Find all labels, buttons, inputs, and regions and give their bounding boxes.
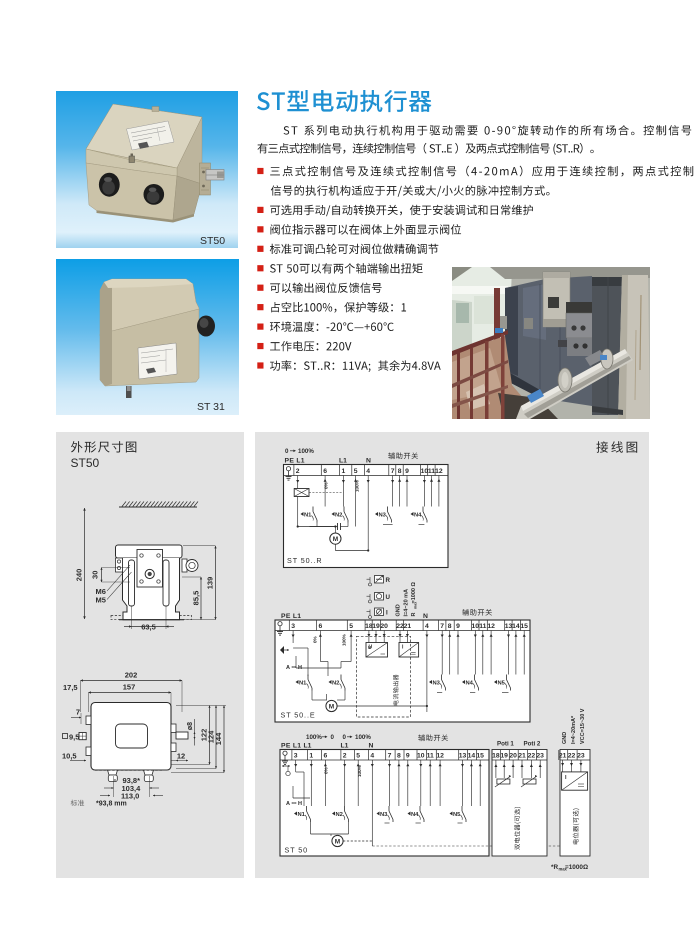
svg-text:7: 7 bbox=[440, 623, 444, 630]
svg-text:9: 9 bbox=[406, 753, 410, 760]
svg-text:ST 50..R: ST 50..R bbox=[287, 556, 322, 565]
svg-text:0%: 0% bbox=[324, 767, 329, 774]
svg-text:21: 21 bbox=[404, 623, 412, 630]
svg-text:L1: L1 bbox=[304, 743, 312, 750]
svg-text:10: 10 bbox=[417, 753, 425, 760]
svg-text:100%: 100% bbox=[298, 448, 314, 455]
svg-text:0%: 0% bbox=[324, 482, 329, 489]
svg-text:0%: 0% bbox=[313, 636, 318, 643]
svg-text:PE L1: PE L1 bbox=[281, 613, 301, 620]
svg-text:21: 21 bbox=[518, 753, 526, 760]
svg-text:N4: N4 bbox=[466, 680, 474, 686]
svg-text:6: 6 bbox=[323, 468, 327, 475]
svg-text:L1: L1 bbox=[341, 743, 349, 750]
svg-text:I=4~20 mA: I=4~20 mA bbox=[404, 589, 410, 617]
svg-text:ST50: ST50 bbox=[71, 456, 100, 470]
svg-text:14: 14 bbox=[512, 623, 520, 630]
svg-text:15: 15 bbox=[520, 623, 528, 630]
svg-text:5: 5 bbox=[356, 753, 360, 760]
svg-text:157: 157 bbox=[123, 683, 136, 692]
svg-text:0: 0 bbox=[331, 734, 335, 741]
svg-text:N1: N1 bbox=[304, 512, 312, 518]
svg-text:N4: N4 bbox=[414, 512, 422, 518]
svg-text:N2: N2 bbox=[335, 512, 342, 518]
svg-text:PE L1: PE L1 bbox=[285, 458, 305, 465]
svg-text:7: 7 bbox=[76, 708, 80, 717]
svg-text:U: U bbox=[368, 645, 371, 650]
svg-text:21: 21 bbox=[559, 753, 567, 760]
svg-text:=1000Ω: =1000Ω bbox=[565, 864, 588, 871]
svg-text:R: R bbox=[411, 613, 417, 617]
svg-text:8: 8 bbox=[398, 468, 402, 475]
svg-text:11: 11 bbox=[427, 753, 434, 760]
svg-text:5: 5 bbox=[354, 468, 358, 475]
svg-text:N3: N3 bbox=[433, 680, 441, 686]
svg-text:14: 14 bbox=[468, 753, 476, 760]
svg-text:10: 10 bbox=[472, 623, 480, 630]
svg-text:N: N bbox=[369, 743, 374, 750]
svg-text:15: 15 bbox=[476, 753, 484, 760]
svg-text:7: 7 bbox=[391, 468, 395, 475]
svg-text:R: R bbox=[386, 577, 391, 584]
svg-text:13: 13 bbox=[459, 753, 467, 760]
svg-text:ST 50..E: ST 50..E bbox=[281, 711, 316, 720]
svg-text:12: 12 bbox=[177, 752, 185, 761]
svg-text:4: 4 bbox=[370, 753, 374, 760]
svg-text:N5: N5 bbox=[498, 680, 506, 686]
svg-text:2: 2 bbox=[343, 753, 347, 760]
svg-text:12: 12 bbox=[436, 753, 444, 760]
svg-text:10,5: 10,5 bbox=[62, 752, 77, 761]
svg-text:113,0: 113,0 bbox=[121, 792, 139, 801]
svg-text:N3: N3 bbox=[379, 512, 387, 518]
svg-text:100%: 100% bbox=[342, 634, 347, 646]
svg-text:N2: N2 bbox=[332, 680, 339, 686]
svg-text:19: 19 bbox=[372, 623, 380, 630]
svg-text:4: 4 bbox=[425, 623, 429, 630]
svg-text:12: 12 bbox=[435, 468, 443, 475]
svg-text:12: 12 bbox=[487, 623, 495, 630]
svg-text:202: 202 bbox=[125, 671, 138, 680]
svg-text:N4: N4 bbox=[411, 812, 419, 818]
svg-text:ST 50: ST 50 bbox=[285, 846, 309, 855]
svg-text:85,5: 85,5 bbox=[192, 591, 201, 606]
svg-text:18: 18 bbox=[492, 753, 500, 760]
svg-text:3: 3 bbox=[291, 623, 295, 630]
svg-text:N: N bbox=[423, 613, 428, 620]
svg-text:N1: N1 bbox=[299, 680, 307, 686]
svg-text:9,5: 9,5 bbox=[69, 733, 79, 742]
svg-text:20: 20 bbox=[509, 753, 517, 760]
svg-text:3: 3 bbox=[294, 753, 298, 760]
svg-text:4: 4 bbox=[366, 468, 370, 475]
svg-text:11: 11 bbox=[479, 623, 486, 630]
svg-text:6: 6 bbox=[319, 623, 323, 630]
svg-text:I: I bbox=[386, 610, 388, 617]
svg-text:*93,8 mm: *93,8 mm bbox=[96, 801, 127, 808]
svg-text:ST50: ST50 bbox=[200, 235, 225, 247]
svg-text:100%: 100% bbox=[354, 480, 359, 492]
svg-text:N2: N2 bbox=[336, 812, 343, 818]
svg-text:9: 9 bbox=[405, 468, 409, 475]
svg-text:I=4~20mA*: I=4~20mA* bbox=[571, 715, 577, 744]
svg-text:M: M bbox=[329, 703, 334, 710]
svg-text:Poti 1: Poti 1 bbox=[497, 741, 514, 748]
svg-text:23: 23 bbox=[536, 753, 544, 760]
svg-text:L1: L1 bbox=[339, 458, 347, 465]
svg-text:M5: M5 bbox=[96, 596, 106, 605]
svg-text:Poti 2: Poti 2 bbox=[524, 741, 541, 748]
svg-text:5: 5 bbox=[349, 623, 353, 630]
svg-text:8: 8 bbox=[448, 623, 452, 630]
svg-text:9: 9 bbox=[456, 623, 460, 630]
svg-text:M: M bbox=[333, 536, 338, 543]
svg-text:20: 20 bbox=[380, 623, 388, 630]
svg-text:N3: N3 bbox=[380, 812, 388, 818]
svg-text:22: 22 bbox=[568, 753, 576, 760]
svg-text:100%: 100% bbox=[355, 734, 371, 741]
svg-text:N: N bbox=[366, 458, 371, 465]
svg-text:A: A bbox=[286, 665, 290, 671]
svg-text:PE L1: PE L1 bbox=[281, 743, 301, 750]
svg-text:A: A bbox=[286, 801, 290, 807]
svg-text:M: M bbox=[335, 838, 340, 845]
svg-text:N5: N5 bbox=[453, 812, 461, 818]
svg-text:H: H bbox=[298, 665, 302, 671]
svg-text:1: 1 bbox=[342, 468, 346, 475]
svg-text:VCC=15~30 V: VCC=15~30 V bbox=[580, 708, 586, 744]
svg-text:*R: *R bbox=[551, 864, 558, 871]
svg-text:0: 0 bbox=[285, 448, 289, 455]
svg-text:0: 0 bbox=[343, 734, 347, 741]
svg-text:17,5: 17,5 bbox=[63, 683, 78, 692]
svg-text:30: 30 bbox=[91, 571, 100, 579]
svg-text:100%: 100% bbox=[357, 765, 362, 777]
svg-text:19: 19 bbox=[500, 753, 508, 760]
svg-text:63,5: 63,5 bbox=[141, 623, 156, 632]
svg-text:100%: 100% bbox=[306, 734, 322, 741]
svg-text:7: 7 bbox=[388, 753, 392, 760]
svg-text:144: 144 bbox=[214, 732, 223, 745]
svg-text:N1: N1 bbox=[298, 812, 306, 818]
svg-text:ø8: ø8 bbox=[187, 722, 194, 730]
svg-text:1: 1 bbox=[309, 753, 313, 760]
svg-text:GND: GND bbox=[396, 604, 402, 616]
svg-text:139: 139 bbox=[206, 577, 215, 590]
svg-text:22: 22 bbox=[528, 753, 536, 760]
svg-text:U: U bbox=[386, 594, 391, 601]
svg-text:=1000 Ω: =1000 Ω bbox=[411, 582, 417, 604]
svg-text:H: H bbox=[298, 801, 302, 807]
svg-text:6: 6 bbox=[324, 753, 328, 760]
svg-text:GND: GND bbox=[562, 732, 568, 744]
svg-text:23: 23 bbox=[577, 753, 585, 760]
svg-text:ST 31: ST 31 bbox=[197, 401, 225, 413]
svg-text:8: 8 bbox=[397, 753, 401, 760]
svg-text:240: 240 bbox=[75, 569, 84, 582]
svg-text:2: 2 bbox=[296, 468, 300, 475]
